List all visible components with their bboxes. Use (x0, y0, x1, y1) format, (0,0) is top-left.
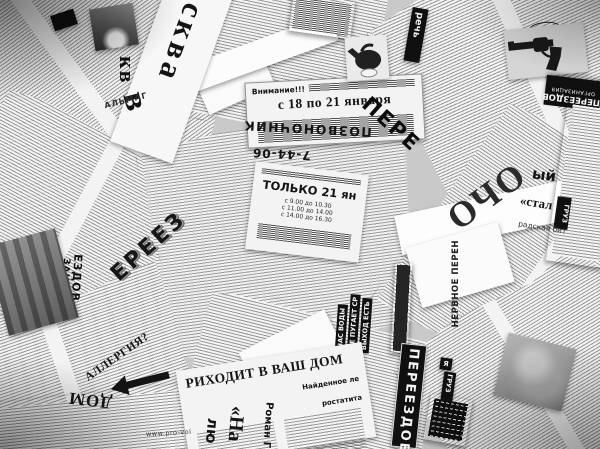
na-quote-vertical: «На (224, 405, 247, 442)
phone-inverted: 7-44-06 (252, 146, 311, 161)
ya-chip: Я (439, 357, 453, 371)
phone-grid-box (422, 393, 474, 448)
yj-fragment: ый (531, 166, 557, 184)
nervnoe-vertical: НЕРВНОЕ ПЕРЕН (452, 240, 461, 327)
naydennoe-fragment: Найденное ле (302, 375, 360, 392)
rech-label: речь (410, 11, 425, 38)
kv-headline: кв (116, 56, 138, 85)
gruz-label: ГРУЗ (444, 374, 455, 393)
roman-vertical: Роман Г (260, 402, 273, 448)
newspaper-photo (89, 3, 139, 51)
schedule-ad-scrap: ТОЛЬКО 21 ян с 9.00 до 10.30 с 11.00 до … (245, 161, 369, 262)
lyu-vertical: лю (203, 417, 220, 444)
attention-label: Внимание!!! (252, 84, 306, 96)
kettle-silhouette (345, 35, 390, 82)
newspaper-collage-photo: осква в кв АЛЬМАГ Внимание!!! с 18 по 21… (0, 0, 600, 449)
pereezdov-banner-label: ПЕРЕЕЗДОВ (395, 347, 421, 449)
revolver-photo (504, 22, 589, 80)
kettle-photo (345, 35, 390, 82)
revolver-silhouette (504, 22, 589, 80)
